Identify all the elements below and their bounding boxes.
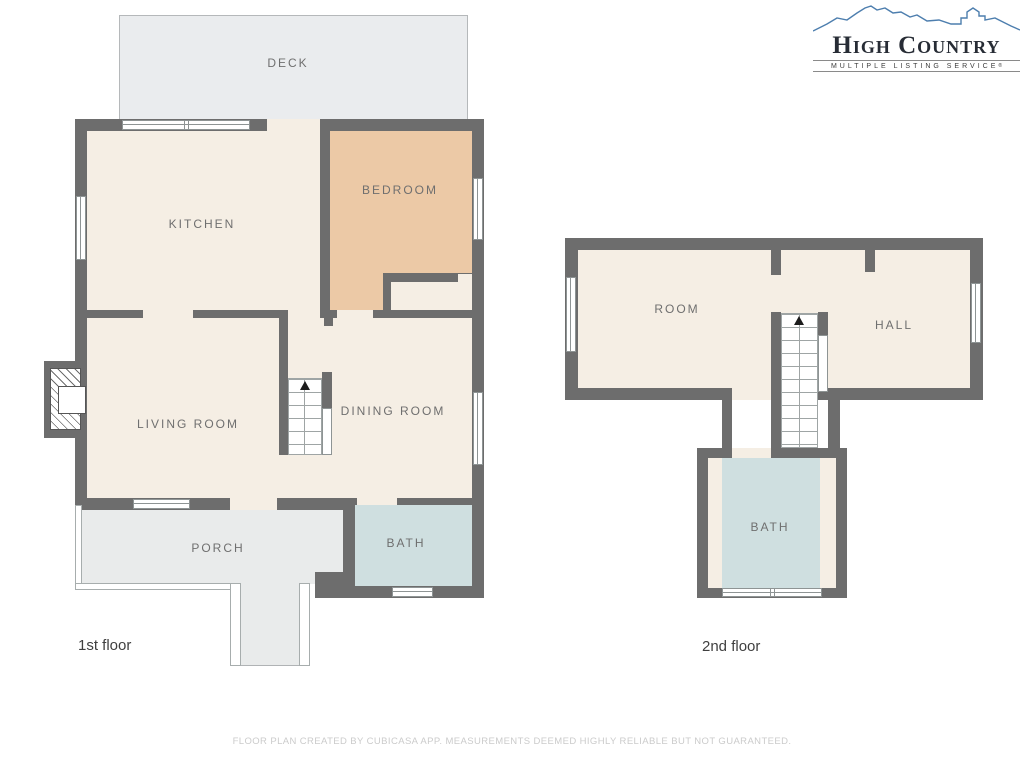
room-label-hall: HALL: [875, 318, 913, 332]
mls-logo: High Country MULTIPLE LISTING SERVICE®: [813, 5, 1020, 72]
stair-wall: [322, 372, 332, 408]
walkway-railing: [299, 583, 310, 666]
logo-title: High Country: [813, 33, 1020, 58]
stair-hall-wall: [279, 310, 288, 455]
kitchen-side-window: [76, 196, 86, 260]
fireplace-box: [58, 386, 86, 414]
room-label-porch: PORCH: [191, 541, 244, 555]
stairs-second-floor: [781, 313, 818, 448]
registered-mark: ®: [998, 63, 1002, 69]
room-side-window: [566, 277, 576, 352]
walkway-area: [241, 583, 299, 666]
disclaimer-text: FLOOR PLAN CREATED BY CUBICASA APP. MEAS…: [0, 736, 1024, 747]
wall-stub: [324, 318, 333, 326]
room-label-living-room: LIVING ROOM: [137, 417, 239, 431]
room-label-room2: ROOM: [654, 302, 699, 316]
stairs2-up-arrow-icon: [794, 316, 804, 325]
living-room-window: [133, 499, 190, 509]
dining-side-window: [473, 392, 483, 465]
mountain-ridge-icon: [813, 5, 1020, 33]
stair2-wall: [771, 312, 781, 448]
room-label-kitchen: KITCHEN: [169, 217, 236, 231]
room-label-dining-room: DINING ROOM: [341, 404, 446, 418]
bath-window: [392, 587, 433, 597]
room-label-bath2: BATH: [750, 520, 789, 534]
room-label-bedroom: BEDROOM: [362, 183, 438, 197]
kitchen-bedroom-wall: [320, 131, 330, 318]
first-floor-label: 1st floor: [78, 637, 131, 654]
room-label-deck: DECK: [267, 56, 308, 70]
walkway-railing: [230, 583, 241, 666]
bedroom-area-lower: [330, 273, 383, 310]
door-opening: [337, 310, 373, 318]
bedroom-side-window: [473, 178, 483, 240]
bath-door-opening: [357, 498, 397, 505]
bath2-window: [722, 588, 822, 597]
room-hall-wall: [771, 250, 781, 275]
door-opening: [143, 310, 193, 318]
room-label-bath1: BATH: [386, 536, 425, 550]
corridor-wall: [722, 388, 732, 452]
hall-wall-stub: [865, 250, 875, 272]
stair2-railing: [818, 335, 828, 392]
front-door-opening: [230, 498, 277, 510]
stair-railing: [322, 408, 332, 455]
hall-side-window: [971, 283, 981, 343]
bedroom-area: [330, 131, 472, 273]
stair2-wall: [818, 312, 828, 335]
logo-subtitle-text: MULTIPLE LISTING SERVICE: [831, 63, 998, 70]
floor-plan-canvas: High Country MULTIPLE LISTING SERVICE®: [0, 0, 1024, 768]
porch-railing: [75, 505, 82, 590]
porch-railing: [75, 583, 236, 590]
kitchen-top-window: [122, 120, 250, 130]
closet-door-opening: [458, 274, 472, 282]
corridor-opening: [732, 388, 771, 400]
deck-door-opening: [267, 119, 320, 131]
bath2-door-opening: [732, 448, 771, 458]
stairs-up-arrow-icon: [300, 381, 310, 390]
stair-bay-wall: [828, 398, 840, 455]
second-floor-label: 2nd floor: [702, 638, 760, 655]
logo-subtitle: MULTIPLE LISTING SERVICE®: [813, 60, 1020, 72]
